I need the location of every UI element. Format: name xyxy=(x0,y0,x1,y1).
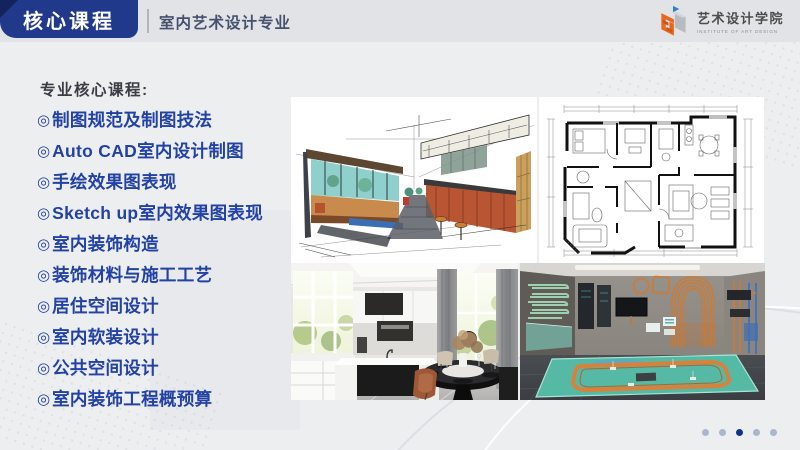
image-floor-plan xyxy=(539,97,764,263)
logo-cube-icon xyxy=(655,5,691,41)
course-item-5: ◎室内装饰构造 xyxy=(37,228,287,259)
course-item-4: ◎Sketch up室内效果图表现 xyxy=(37,197,287,228)
course-label: Auto CAD室内设计制图 xyxy=(52,138,244,163)
slide: 核心课程 室内艺术设计专业 艺术设计学院 INSTITUTE OF ART DE… xyxy=(0,0,800,450)
title-badge: 核心课程 xyxy=(0,0,138,38)
course-label: 室内软装设计 xyxy=(52,324,159,349)
bullseye-bullet-icon: ◎ xyxy=(37,390,50,408)
image-materials-showroom xyxy=(520,263,765,400)
course-label: 居住空间设计 xyxy=(52,293,159,318)
pagination-dot[interactable] xyxy=(719,429,726,436)
course-label: 手绘效果图表现 xyxy=(52,169,177,194)
course-item-8: ◎室内软装设计 xyxy=(37,321,287,352)
course-label: 室内装饰构造 xyxy=(52,231,159,256)
course-label: 装饰材料与施工工艺 xyxy=(52,262,212,287)
badge-corner-fold xyxy=(0,0,18,18)
course-item-2: ◎Auto CAD室内设计制图 xyxy=(37,135,287,166)
school-logo: 艺术设计学院 INSTITUTE OF ART DESIGN xyxy=(655,5,784,41)
course-list: ◎制图规范及制图技法◎Auto CAD室内设计制图◎手绘效果图表现◎Sketch… xyxy=(37,104,287,414)
course-item-9: ◎公共空间设计 xyxy=(37,352,287,383)
pagination-dots xyxy=(702,429,777,436)
list-title: 专业核心课程: xyxy=(40,78,149,100)
bullseye-bullet-icon: ◎ xyxy=(37,328,50,346)
logo-name: 艺术设计学院 xyxy=(697,12,784,26)
bullseye-bullet-icon: ◎ xyxy=(37,204,50,222)
bullseye-bullet-icon: ◎ xyxy=(37,142,50,160)
pagination-dot[interactable] xyxy=(702,429,709,436)
image-hand-drawn-rendering xyxy=(291,97,537,263)
course-label: 公共空间设计 xyxy=(52,355,159,380)
course-label: Sketch up室内效果图表现 xyxy=(52,200,263,225)
course-item-1: ◎制图规范及制图技法 xyxy=(37,104,287,135)
course-item-6: ◎装饰材料与施工工艺 xyxy=(37,259,287,290)
pagination-dot[interactable] xyxy=(753,429,760,436)
course-label: 制图规范及制图技法 xyxy=(52,107,212,132)
course-item-3: ◎手绘效果图表现 xyxy=(37,166,287,197)
bullseye-bullet-icon: ◎ xyxy=(37,359,50,377)
page-title: 核心课程 xyxy=(23,5,115,34)
bullseye-bullet-icon: ◎ xyxy=(37,266,50,284)
pagination-dot[interactable] xyxy=(770,429,777,436)
bullseye-bullet-icon: ◎ xyxy=(37,173,50,191)
course-item-10: ◎室内装饰工程概预算 xyxy=(37,383,287,414)
bullseye-bullet-icon: ◎ xyxy=(37,297,50,315)
bullseye-bullet-icon: ◎ xyxy=(37,111,50,129)
bullseye-bullet-icon: ◎ xyxy=(37,235,50,253)
course-item-7: ◎居住空间设计 xyxy=(37,290,287,321)
course-label: 室内装饰工程概预算 xyxy=(52,386,212,411)
image-kitchen-dining xyxy=(291,263,518,400)
header-subtitle: 室内艺术设计专业 xyxy=(159,11,291,33)
pagination-dot-active[interactable] xyxy=(736,429,743,436)
logo-tagline: INSTITUTE OF ART DESIGN xyxy=(697,29,784,34)
header-divider xyxy=(147,9,149,33)
